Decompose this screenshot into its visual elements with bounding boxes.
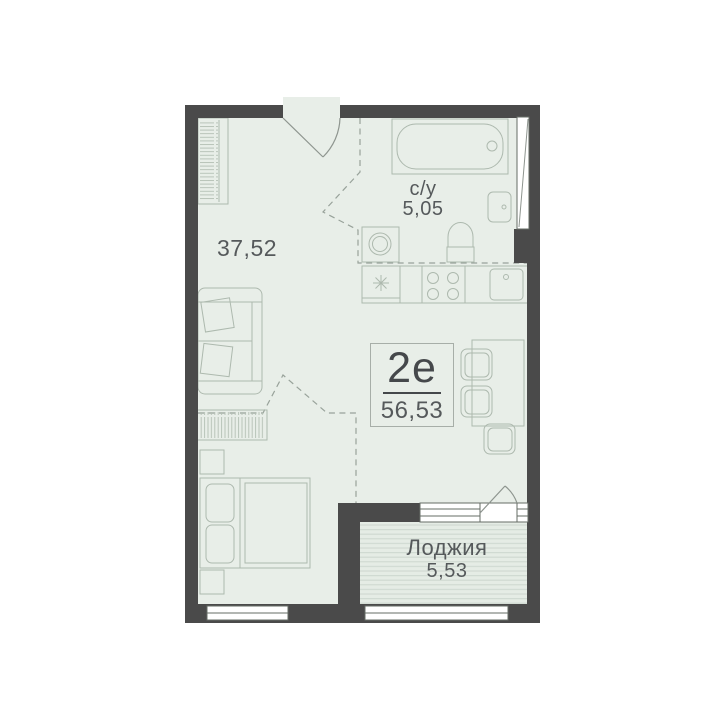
unit-type-label: 2е xyxy=(387,348,437,388)
loggia-area-label: 5,53 xyxy=(374,560,520,582)
window-right-wall xyxy=(517,117,529,229)
unit-info-box: 2е 56,53 xyxy=(370,343,454,427)
living-room-area-label: 37,52 xyxy=(198,235,296,262)
floor-plan: 37,52 с/у 5,05 Лоджия 5,53 2е 56,53 xyxy=(0,0,726,726)
loggia-name-label: Лоджия xyxy=(374,536,520,560)
unit-total-area-label: 56,53 xyxy=(381,399,444,423)
unit-box-divider xyxy=(383,392,441,394)
bathroom-labels: с/у 5,05 xyxy=(373,179,473,219)
loggia-labels: Лоджия 5,53 xyxy=(374,536,520,582)
dresser-icon xyxy=(197,410,267,440)
window-loggia-bottom xyxy=(365,606,508,620)
bathroom-area-label: 5,05 xyxy=(373,199,473,219)
window-bottom-left xyxy=(207,606,288,620)
floor-plan-drawing xyxy=(0,0,726,726)
balcony-window xyxy=(420,503,528,522)
entrance-opening xyxy=(283,97,340,119)
bathroom-name-label: с/у xyxy=(373,179,473,199)
